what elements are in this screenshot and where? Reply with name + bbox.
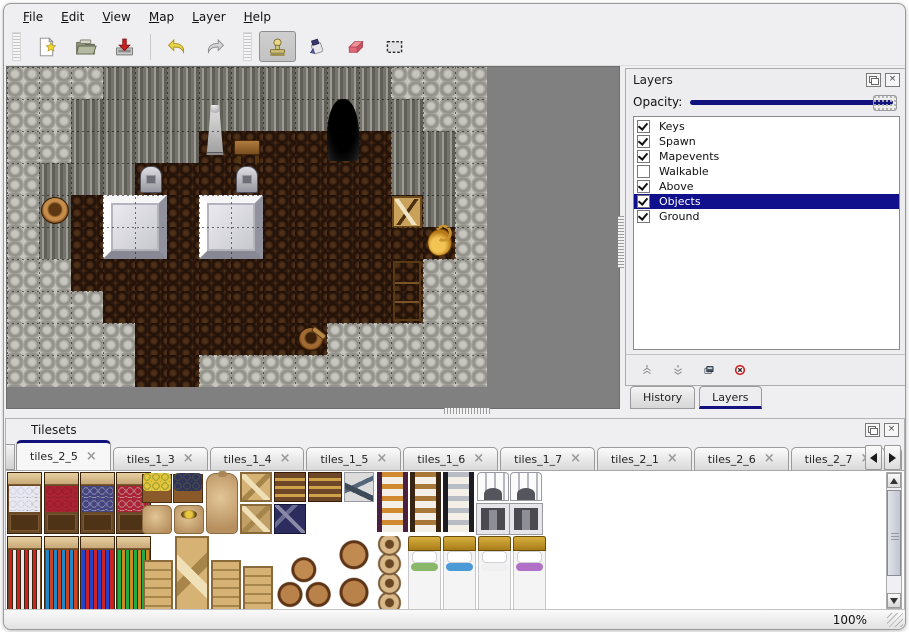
tileset-item-bed[interactable] <box>513 536 546 611</box>
map-tile[interactable] <box>39 163 71 195</box>
map-tile[interactable] <box>167 99 199 131</box>
map-tile[interactable] <box>327 67 359 99</box>
map-tile[interactable] <box>455 131 487 163</box>
map-tile[interactable] <box>7 227 39 259</box>
close-tab-icon[interactable]: × <box>473 454 484 464</box>
clipped-tab <box>6 444 15 470</box>
map-tile[interactable] <box>295 163 327 195</box>
map-tile[interactable] <box>295 355 327 387</box>
tileset-item-ladder[interactable] <box>377 472 408 532</box>
map-tile[interactable] <box>167 291 199 323</box>
chevrons-down-icon <box>672 361 684 379</box>
layer-row-objects[interactable]: Objects <box>634 194 899 209</box>
map-tile[interactable] <box>7 131 39 163</box>
move-layer-down-button[interactable] <box>666 359 690 381</box>
opacity-row: Opacity: <box>626 90 905 114</box>
map-tile[interactable] <box>7 291 39 323</box>
map-tile[interactable] <box>263 131 295 163</box>
scroll-tabs-left-button[interactable] <box>865 445 882 470</box>
vertical-splitter-handle[interactable] <box>618 216 624 268</box>
tileset-item-pots[interactable] <box>373 536 406 611</box>
map-tile[interactable] <box>359 99 391 131</box>
tileset-tab-label: tiles_1_4 <box>224 453 272 466</box>
map-tile[interactable] <box>263 323 295 355</box>
map-tile[interactable] <box>7 163 39 195</box>
opacity-slider[interactable] <box>690 94 897 110</box>
map-tile[interactable] <box>7 67 39 99</box>
map-tile[interactable] <box>327 227 359 259</box>
map-tile[interactable] <box>39 323 71 355</box>
status-bar: 100% <box>4 609 905 629</box>
map-tile[interactable] <box>391 67 423 99</box>
map-tile[interactable] <box>7 355 39 387</box>
map-tile[interactable] <box>359 131 391 163</box>
toolbar-grip[interactable] <box>12 32 21 61</box>
map-tile[interactable] <box>167 163 199 195</box>
tileset-tabbar: tiles_2_5×tiles_1_3×tiles_1_4×tiles_1_5×… <box>6 440 904 471</box>
tileset-item-crate[interactable] <box>243 566 273 611</box>
tileset-item-sackopen[interactable] <box>174 505 204 534</box>
map-tile[interactable] <box>359 227 391 259</box>
map-tile[interactable] <box>231 291 263 323</box>
map-tile[interactable] <box>295 291 327 323</box>
tab-scroll-buttons <box>863 445 901 470</box>
map-tile[interactable] <box>391 163 423 195</box>
map-tile[interactable] <box>423 259 455 291</box>
tileset-item-shelfa[interactable] <box>44 472 79 534</box>
map-tile[interactable] <box>135 67 167 99</box>
map-tile[interactable] <box>39 291 71 323</box>
right-arrow-icon <box>889 453 896 463</box>
menu-bar: FileEditViewMapLayerHelp <box>4 6 905 28</box>
tilesets-panel-titlebar: Tilesets × <box>6 419 904 440</box>
tileset-item-shelfb[interactable] <box>7 536 42 611</box>
map-tile[interactable] <box>167 323 199 355</box>
map-tile[interactable] <box>39 355 71 387</box>
map-tile[interactable] <box>455 67 487 99</box>
map-tile[interactable] <box>39 99 71 131</box>
map-object-cave[interactable] <box>327 99 359 161</box>
horizontal-splitter-handle[interactable] <box>444 408 490 414</box>
map-tile[interactable] <box>295 67 327 99</box>
map-tile[interactable] <box>71 323 103 355</box>
menu-item-help[interactable]: Help <box>235 7 280 27</box>
map-tile[interactable] <box>71 355 103 387</box>
map-tile[interactable] <box>391 227 423 259</box>
map-viewport[interactable] <box>6 66 620 409</box>
bed-pillow <box>517 551 542 563</box>
save-icon <box>113 35 136 59</box>
tileset-tab-label: tiles_1_6 <box>417 453 465 466</box>
layer-row-ground[interactable]: Ground <box>634 209 899 224</box>
map-tile[interactable] <box>135 323 167 355</box>
tileset-item-chest[interactable] <box>274 472 306 502</box>
delete-circle-icon <box>734 361 746 379</box>
map-tile[interactable] <box>199 355 231 387</box>
map-tile[interactable] <box>39 227 71 259</box>
map-tile[interactable] <box>231 67 263 99</box>
map-tile[interactable] <box>359 291 391 323</box>
layer-row-keys[interactable]: Keys <box>634 119 899 134</box>
undo-arrow-icon <box>165 35 188 59</box>
zoom-level-label: 100% <box>833 613 867 627</box>
map-tile[interactable] <box>327 195 359 227</box>
bed-pillow <box>482 551 507 563</box>
map-tile[interactable] <box>455 163 487 195</box>
map-tile[interactable] <box>423 99 455 131</box>
map-tile[interactable] <box>391 99 423 131</box>
map-tile[interactable] <box>199 163 231 195</box>
map-tile[interactable] <box>71 259 103 291</box>
map-tile[interactable] <box>135 131 167 163</box>
tileset-tab-tiles_1_6[interactable]: tiles_1_6× <box>403 447 498 470</box>
opacity-slider-track <box>690 100 893 105</box>
menu-item-file[interactable]: File <box>14 7 52 27</box>
layer-name-label: Mapevents <box>659 150 719 163</box>
map-tile[interactable] <box>167 67 199 99</box>
eraser-icon <box>344 35 367 59</box>
map-tile[interactable] <box>71 227 103 259</box>
tileset-item-chest[interactable] <box>308 472 342 502</box>
window-resize-grip[interactable] <box>887 613 903 627</box>
redo-arrow-icon <box>204 35 227 59</box>
map-tile[interactable] <box>135 291 167 323</box>
layer-visibility-checkbox[interactable] <box>637 120 650 133</box>
map-tile[interactable] <box>39 67 71 99</box>
layer-list: KeysSpawnMapeventsWalkableAboveObjectsGr… <box>633 116 900 350</box>
map-tile[interactable] <box>359 195 391 227</box>
map-tile[interactable] <box>231 99 263 131</box>
map-tile[interactable] <box>391 131 423 163</box>
map-tile[interactable] <box>103 131 135 163</box>
tileset-tab-label: tiles_2_6 <box>708 453 756 466</box>
new-file-icon <box>35 35 58 59</box>
map-tile[interactable] <box>423 291 455 323</box>
map-object-altar[interactable] <box>199 195 263 259</box>
layer-row-mapevents[interactable]: Mapevents <box>634 149 899 164</box>
map-tile[interactable] <box>167 355 199 387</box>
scroll-up-button[interactable] <box>887 473 901 488</box>
map-tile[interactable] <box>231 259 263 291</box>
map-tile[interactable] <box>103 259 135 291</box>
layer-visibility-checkbox[interactable] <box>637 150 650 163</box>
menu-item-layer[interactable]: Layer <box>183 7 234 27</box>
menu-item-view[interactable]: View <box>93 7 139 27</box>
map-tile[interactable] <box>71 291 103 323</box>
close-tab-icon[interactable]: × <box>764 454 775 464</box>
tileset-item-navy[interactable] <box>274 504 306 534</box>
map-tile[interactable] <box>359 323 391 355</box>
close-panel-icon[interactable]: × <box>884 423 899 437</box>
eraser-tool-button[interactable] <box>337 31 374 62</box>
tileset-tab-label: tiles_2 <box>901 453 902 466</box>
tileset-item-crate[interactable] <box>143 560 173 611</box>
map-tile[interactable] <box>359 163 391 195</box>
tileset-item-cratex[interactable] <box>175 536 209 611</box>
map-tile[interactable] <box>103 291 135 323</box>
map-tile[interactable] <box>327 323 359 355</box>
shelf-drawer <box>47 514 76 531</box>
tileset-canvas[interactable] <box>7 472 885 611</box>
map-tile[interactable] <box>71 163 103 195</box>
map-tile[interactable] <box>423 131 455 163</box>
map-tile[interactable] <box>231 323 263 355</box>
stamp-tool-button[interactable] <box>259 31 296 62</box>
layer-name-label: Spawn <box>659 135 696 148</box>
layer-name-label: Walkable <box>659 165 709 178</box>
map-object-tombstone[interactable] <box>140 166 162 193</box>
tilesets-panel: Tilesets × tiles_2_5×tiles_1_3×tiles_1_4… <box>5 418 905 610</box>
tileset-tab-tiles_2_6[interactable]: tiles_2_6× <box>694 447 789 470</box>
layer-row-spawn[interactable]: Spawn <box>634 134 899 149</box>
map-tile[interactable] <box>7 259 39 291</box>
new-map-button[interactable] <box>28 31 65 62</box>
tileset-item-bed[interactable] <box>443 536 476 611</box>
map-tile[interactable] <box>71 67 103 99</box>
redo-button[interactable] <box>197 31 234 62</box>
tileset-item-bed[interactable] <box>408 536 441 611</box>
scroll-down-button[interactable] <box>887 593 901 608</box>
tileset-item-crate[interactable] <box>211 560 241 611</box>
map-object-altar[interactable] <box>103 195 167 259</box>
toolbar <box>4 28 905 66</box>
map-tile[interactable] <box>359 355 391 387</box>
map-tile[interactable] <box>423 355 455 387</box>
map-tile[interactable] <box>327 291 359 323</box>
map-tile[interactable] <box>391 323 423 355</box>
tileset-item-door[interactable] <box>510 504 542 534</box>
tileset-tab-label: tiles_1_5 <box>320 453 368 466</box>
tileset-tab-tiles_1_5[interactable]: tiles_1_5× <box>306 447 401 470</box>
ink-bottle-icon <box>305 35 328 59</box>
tileset-item-cratex[interactable] <box>240 504 272 534</box>
map-tile[interactable] <box>327 259 359 291</box>
map-tile[interactable] <box>199 323 231 355</box>
map-tile[interactable] <box>135 355 167 387</box>
delete-layer-button[interactable] <box>728 359 752 381</box>
map-tile[interactable] <box>423 323 455 355</box>
map-tile[interactable] <box>263 163 295 195</box>
map-tile[interactable] <box>455 355 487 387</box>
map-tile[interactable] <box>71 195 103 227</box>
menu-item-edit[interactable]: Edit <box>52 7 93 27</box>
shelf-drawer <box>83 514 112 531</box>
map-tile[interactable] <box>423 163 455 195</box>
map-tile[interactable] <box>103 67 135 99</box>
stamp-icon <box>266 35 289 59</box>
layer-visibility-checkbox[interactable] <box>637 165 650 178</box>
map-tile[interactable] <box>7 99 39 131</box>
tileset-item-ladder[interactable] <box>410 472 441 532</box>
map-tile[interactable] <box>455 227 487 259</box>
tileset-scrollbar[interactable] <box>886 472 902 609</box>
layer-visibility-checkbox[interactable] <box>637 135 650 148</box>
right-dock-tabbar: HistoryLayers <box>630 386 766 409</box>
map-tile[interactable] <box>263 99 295 131</box>
layer-visibility-checkbox[interactable] <box>637 180 650 193</box>
map-object-crate[interactable] <box>392 196 422 228</box>
duplicate-layer-button[interactable] <box>697 359 721 381</box>
map-tile[interactable] <box>295 259 327 291</box>
map-tile[interactable] <box>103 99 135 131</box>
tileset-item-shelfa[interactable] <box>80 472 115 534</box>
open-folder-icon <box>74 35 97 59</box>
map-tile[interactable] <box>7 195 39 227</box>
duplicate-icon <box>703 361 715 379</box>
layer-name-label: Keys <box>659 120 685 133</box>
map-tile[interactable] <box>455 99 487 131</box>
tileset-item-shelfb[interactable] <box>44 536 79 611</box>
map-tile[interactable] <box>39 131 71 163</box>
map-tile[interactable] <box>359 67 391 99</box>
map-tile[interactable] <box>71 131 103 163</box>
close-tab-icon[interactable]: × <box>280 454 291 464</box>
layer-visibility-checkbox[interactable] <box>637 210 650 223</box>
map-tile[interactable] <box>455 259 487 291</box>
tileset-item-sackbig[interactable] <box>206 473 238 534</box>
tileset-item-sack[interactable] <box>142 505 172 534</box>
opacity-slider-handle[interactable] <box>873 95 897 111</box>
tileset-item-lumber[interactable] <box>344 472 374 502</box>
map-tile[interactable] <box>263 195 295 227</box>
map-tile[interactable] <box>199 259 231 291</box>
chevrons-up-icon <box>641 361 653 379</box>
map-tile[interactable] <box>327 355 359 387</box>
map-tile[interactable] <box>231 355 263 387</box>
tileset-item-barrels[interactable] <box>275 552 335 611</box>
layers-panel-titlebar: Layers × <box>626 69 905 90</box>
map-canvas[interactable] <box>7 67 487 387</box>
tileset-item-ladder[interactable] <box>443 472 474 532</box>
tileset-item-door[interactable] <box>477 504 509 534</box>
map-object-table[interactable] <box>234 140 260 155</box>
layers-panel-title: Layers <box>633 73 673 87</box>
undo-button[interactable] <box>158 31 195 62</box>
tileset-tab-label: tiles_2_1 <box>611 453 659 466</box>
map-tile[interactable] <box>295 227 327 259</box>
map-tile[interactable] <box>263 67 295 99</box>
tileset-item-shelfa[interactable] <box>7 472 42 534</box>
map-tile[interactable] <box>39 259 71 291</box>
menu-item-map[interactable]: Map <box>140 7 183 27</box>
map-tile[interactable] <box>295 131 327 163</box>
toolbar-separator <box>150 34 151 60</box>
map-tile[interactable] <box>199 291 231 323</box>
map-tile[interactable] <box>71 99 103 131</box>
tileset-tab-tiles_2_5[interactable]: tiles_2_5× <box>16 440 111 470</box>
map-tile[interactable] <box>359 259 391 291</box>
map-tile[interactable] <box>135 259 167 291</box>
map-tile[interactable] <box>167 259 199 291</box>
layer-row-above[interactable]: Above <box>634 179 899 194</box>
bed-pillow <box>447 551 472 563</box>
layer-name-label: Above <box>659 180 694 193</box>
scrollbar-thumb[interactable] <box>887 490 901 576</box>
close-tab-icon[interactable]: × <box>376 454 387 464</box>
map-tile[interactable] <box>263 355 295 387</box>
close-tab-icon[interactable]: × <box>570 454 581 464</box>
map-object-tombstone[interactable] <box>236 166 258 193</box>
close-tab-icon[interactable]: × <box>183 454 194 464</box>
map-tile[interactable] <box>199 67 231 99</box>
map-object-bucket[interactable] <box>298 327 324 351</box>
shelf-drawer <box>10 514 39 531</box>
layer-name-label: Objects <box>659 195 701 208</box>
tileset-tab-tiles_2_1[interactable]: tiles_2_1× <box>597 447 692 470</box>
map-tile[interactable] <box>7 323 39 355</box>
map-tile[interactable] <box>455 291 487 323</box>
map-tile[interactable] <box>167 195 199 227</box>
tileset-item-arch[interactable] <box>510 472 542 501</box>
close-panel-icon[interactable]: × <box>885 73 900 87</box>
map-editor-window: FileEditViewMapLayerHelp <box>3 3 906 630</box>
map-object-shelf[interactable] <box>393 261 421 321</box>
map-tile[interactable] <box>103 163 135 195</box>
tileset-item-barrel2[interactable] <box>337 536 371 611</box>
tileset-item-planter[interactable] <box>173 474 203 503</box>
tileset-tab-label: tiles_2_5 <box>30 450 78 463</box>
layer-visibility-checkbox[interactable] <box>637 195 650 208</box>
float-panel-icon[interactable] <box>866 73 881 87</box>
tileset-item-shelfb[interactable] <box>80 536 115 611</box>
dock-tab-history[interactable]: History <box>630 386 695 409</box>
tileset-item-bed[interactable] <box>478 536 511 611</box>
fill-tool-button[interactable] <box>298 31 335 62</box>
map-tile[interactable] <box>391 355 423 387</box>
map-tile[interactable] <box>103 355 135 387</box>
close-tab-icon[interactable]: × <box>86 452 97 462</box>
open-map-button[interactable] <box>67 31 104 62</box>
map-tile[interactable] <box>167 131 199 163</box>
select-tool-button[interactable] <box>376 31 413 62</box>
map-tile[interactable] <box>263 291 295 323</box>
map-tile[interactable] <box>167 227 199 259</box>
layer-buttons-row <box>626 354 905 385</box>
map-tile[interactable] <box>263 227 295 259</box>
tileset-tab-tiles_1_7[interactable]: tiles_1_7× <box>500 447 595 470</box>
bed-pillow <box>412 551 437 563</box>
tileset-item-cratex[interactable] <box>240 472 272 502</box>
map-tile[interactable] <box>135 99 167 131</box>
map-object-pot[interactable] <box>41 197 69 224</box>
down-arrow-icon <box>890 598 898 604</box>
tileset-tab-tiles_1_4[interactable]: tiles_1_4× <box>210 447 305 470</box>
toolbar-grip-2[interactable] <box>243 32 252 61</box>
tileset-item-arch[interactable] <box>477 472 509 501</box>
dock-tab-layers[interactable]: Layers <box>699 386 761 409</box>
map-tile[interactable] <box>423 67 455 99</box>
map-tile[interactable] <box>295 99 327 131</box>
float-panel-icon[interactable] <box>865 423 880 437</box>
close-tab-icon[interactable]: × <box>667 454 678 464</box>
tileset-tab-tiles_1_3[interactable]: tiles_1_3× <box>113 447 208 470</box>
map-tile[interactable] <box>263 259 295 291</box>
map-tile[interactable] <box>455 195 487 227</box>
map-tile[interactable] <box>103 323 135 355</box>
layers-panel: Layers × Opacity: KeysSpawnMapeventsWalk… <box>625 68 906 386</box>
layer-row-walkable[interactable]: Walkable <box>634 164 899 179</box>
map-tile[interactable] <box>295 195 327 227</box>
move-layer-up-button[interactable] <box>635 359 659 381</box>
map-tile[interactable] <box>423 195 455 227</box>
selection-rect-icon <box>383 35 406 59</box>
map-tile[interactable] <box>455 323 487 355</box>
tileset-item-planter[interactable] <box>142 474 172 503</box>
save-map-button[interactable] <box>106 31 143 62</box>
map-tile[interactable] <box>327 163 359 195</box>
scroll-tabs-right-button[interactable] <box>884 445 901 470</box>
tilesets-panel-title: Tilesets <box>31 423 77 437</box>
